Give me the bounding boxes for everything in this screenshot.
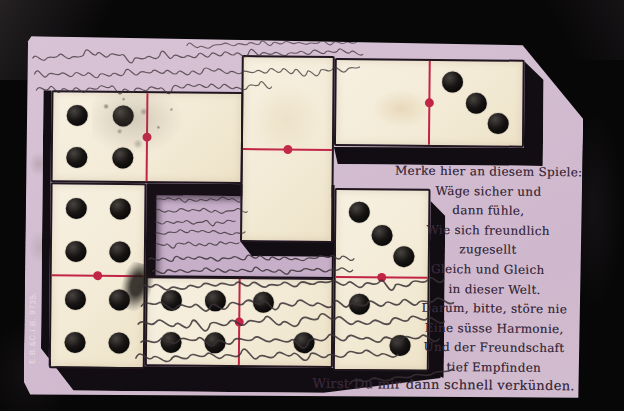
domino-pip — [66, 198, 87, 219]
domino-half — [51, 275, 144, 367]
domino-pip — [109, 289, 130, 310]
domino-divider-dot — [142, 133, 151, 142]
domino-pip — [205, 332, 226, 353]
domino-half — [239, 279, 332, 366]
background-light-streak — [520, 0, 624, 60]
domino-half — [147, 278, 240, 365]
domino-pip — [160, 331, 181, 352]
domino-pip — [161, 290, 182, 311]
poem-line: tief Empfinden — [403, 358, 585, 379]
domino-half — [243, 57, 333, 149]
poem-line: Wäge sicher und — [390, 181, 586, 202]
domino-half — [52, 184, 145, 276]
domino-half — [242, 149, 332, 241]
domino-divider-dot — [425, 98, 434, 107]
poem-line: Darum, bitte, störe nie — [403, 299, 585, 320]
domino-pip — [65, 241, 86, 262]
poem-line: Wie sich freundlich — [390, 220, 586, 241]
domino-half — [336, 60, 430, 145]
domino-pip — [487, 113, 508, 134]
domino-pip — [110, 198, 131, 219]
domino-pip — [294, 332, 315, 353]
poem-last-line: Wirst Du mir dann schnell verkünden. — [294, 376, 594, 394]
domino-half — [429, 61, 523, 146]
domino-half — [147, 93, 242, 182]
domino-pip — [349, 293, 370, 314]
domino-pip — [67, 105, 88, 126]
poem-line: Und der Freundschaft — [403, 338, 585, 359]
domino-pip — [253, 292, 274, 313]
domino-pip — [64, 332, 85, 353]
domino-top-left — [51, 90, 244, 184]
domino-pip — [205, 291, 226, 312]
domino-pip — [442, 71, 463, 92]
domino-pip — [65, 289, 86, 310]
domino-pip — [112, 147, 133, 168]
publisher-imprint: E.B.&C.i.B. 9735. — [28, 278, 41, 364]
domino-bottom-center — [145, 276, 334, 368]
domino-pip — [112, 105, 133, 126]
domino-pip — [465, 93, 486, 114]
poem-line: Eine süsse Harmonie, — [403, 318, 585, 339]
postcard: E.B.&C.i.B. 9735. — [24, 34, 584, 401]
domino-top-center — [240, 55, 335, 243]
domino-pip — [349, 202, 370, 223]
poem-text: Merke hier an diesem Spiele: Wäge sicher… — [389, 161, 587, 378]
domino-middle-left — [49, 182, 147, 369]
background-light-streak — [578, 110, 624, 310]
domino-divider-dot — [93, 271, 102, 280]
domino-pip — [109, 333, 130, 354]
photo-background: E.B.&C.i.B. 9735. — [0, 0, 624, 411]
domino-divider-dot — [377, 273, 386, 282]
poem-line: Merke hier an diesem Spiele: — [391, 161, 587, 182]
poem-line: in dieser Welt. — [403, 279, 585, 300]
domino-divider-dot — [283, 144, 292, 153]
domino-half — [53, 92, 148, 181]
poem-line: Gleich und Gleich — [390, 259, 586, 280]
poem-line: zugesellt — [390, 240, 586, 261]
domino-pip — [67, 147, 88, 168]
poem-line: dann fühle, — [390, 201, 586, 222]
domino-pip — [109, 242, 130, 263]
handwriting-stroke — [187, 38, 357, 49]
domino-top-right — [334, 58, 525, 148]
domino-divider-dot — [235, 318, 244, 327]
